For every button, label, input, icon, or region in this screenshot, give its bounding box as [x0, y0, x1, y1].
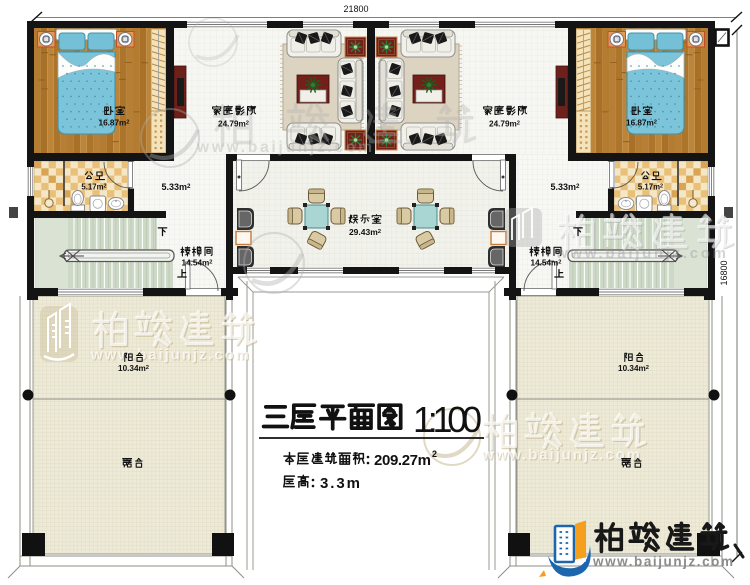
- svg-text:3.3m: 3.3m: [320, 475, 360, 492]
- svg-text:5.17m2: 5.17m2: [638, 183, 663, 192]
- svg-text:5.17m2: 5.17m2: [81, 183, 106, 192]
- svg-text:209.27m: 209.27m: [374, 452, 431, 469]
- svg-text:16.87m2: 16.87m2: [99, 118, 130, 127]
- svg-text:10.34m2: 10.34m2: [618, 364, 649, 373]
- svg-text:24.79m2: 24.79m2: [218, 119, 249, 128]
- svg-text:21800: 21800: [343, 4, 368, 14]
- svg-text:16.87m2: 16.87m2: [626, 118, 657, 127]
- svg-text:16800: 16800: [719, 260, 729, 285]
- svg-text:10.34m2: 10.34m2: [118, 364, 149, 373]
- svg-text:29.43m2: 29.43m2: [349, 227, 382, 237]
- svg-text:2: 2: [432, 449, 437, 459]
- svg-text:14.54m2: 14.54m2: [182, 259, 213, 268]
- svg-text:5.33m2: 5.33m2: [161, 182, 191, 192]
- svg-text:14.54m2: 14.54m2: [531, 259, 562, 268]
- svg-text:5.33m2: 5.33m2: [550, 182, 580, 192]
- svg-text:1:100: 1:100: [413, 399, 482, 440]
- svg-text:24.79m2: 24.79m2: [489, 119, 520, 128]
